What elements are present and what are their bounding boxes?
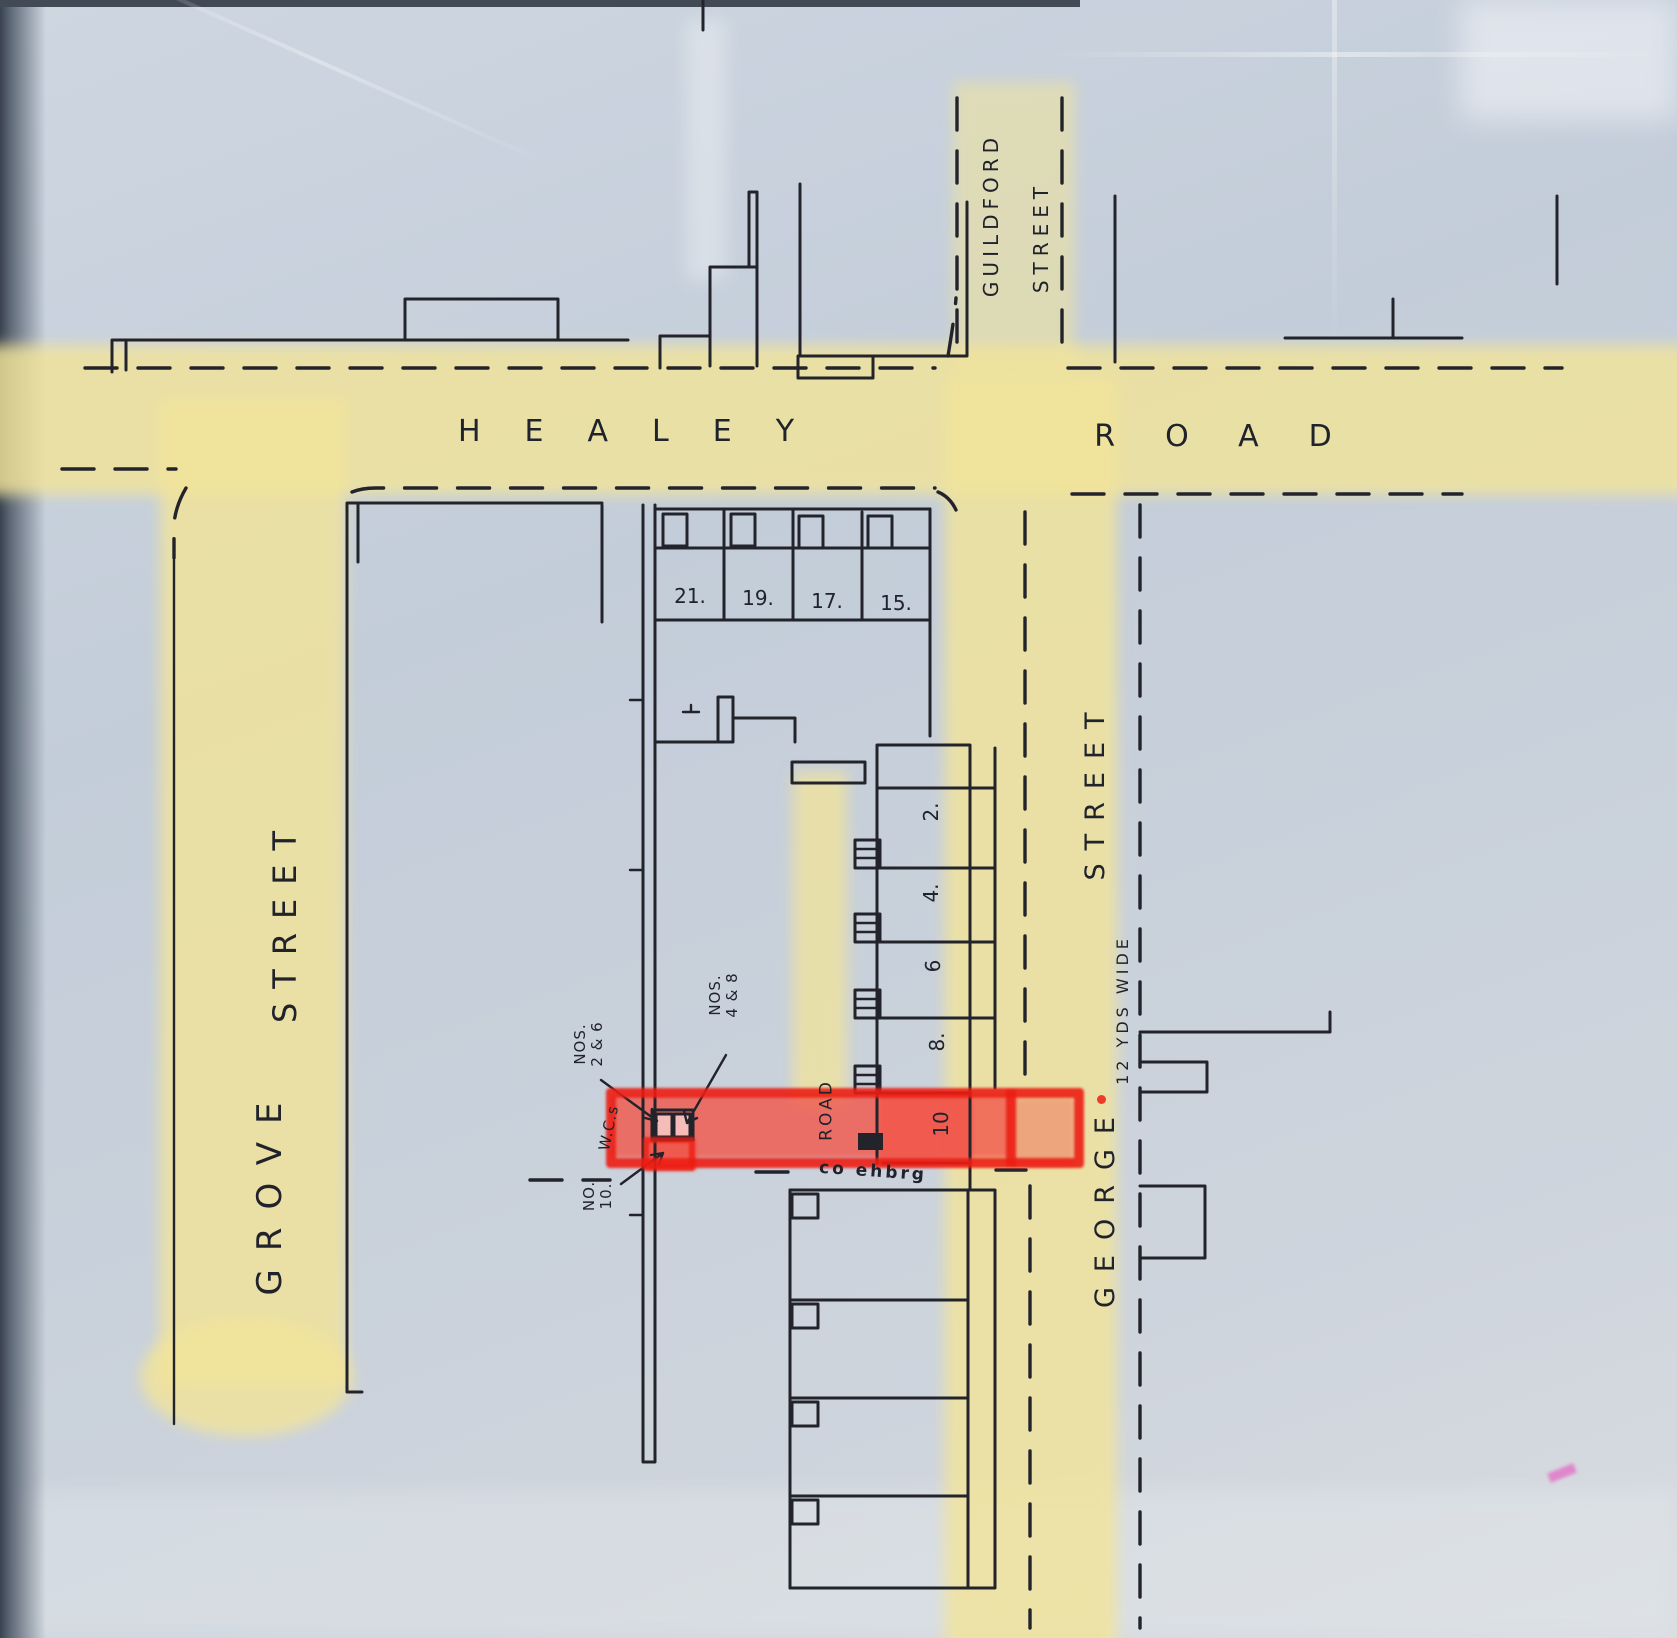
grove-street-label-1: GROVE bbox=[251, 1085, 289, 1296]
grove-street-label-2: STREET bbox=[268, 817, 304, 1023]
house-number-19: 19. bbox=[742, 587, 774, 609]
house-number-15: 15. bbox=[880, 592, 912, 614]
courtyard-structures bbox=[655, 697, 865, 783]
house-number-2: 2. bbox=[920, 802, 942, 821]
annotation-nos-2-6: NOS. 2 & 6 bbox=[572, 1021, 606, 1066]
annotation-line: NOS. bbox=[572, 1021, 589, 1066]
annotation-line: NOS. bbox=[707, 972, 724, 1017]
annotation-nos-4-8: NOS. 4 & 8 bbox=[707, 972, 741, 1017]
guildford-street-label-1: GUILDFORD bbox=[980, 133, 1002, 297]
annotation-line: NO. bbox=[581, 1181, 598, 1211]
house-number-8: 8. bbox=[926, 1032, 948, 1051]
healey-house-row bbox=[655, 509, 930, 736]
annotation-line: 4 & 8 bbox=[724, 972, 741, 1017]
west-block-outline bbox=[347, 503, 655, 1462]
george-street-width-note: 12 YDS WIDE bbox=[1114, 935, 1132, 1085]
annotation-line: 10. bbox=[598, 1181, 615, 1211]
george-street-label-2: STREET bbox=[1081, 699, 1111, 880]
healey-road-label-right: ROAD bbox=[1094, 420, 1382, 454]
house-number-4: 4. bbox=[920, 883, 942, 902]
annotation-line: 2 & 6 bbox=[589, 1021, 606, 1066]
annotation-no-10: NO. 10. bbox=[581, 1181, 615, 1211]
house-number-6: 6 bbox=[922, 960, 944, 973]
house-number-21: 21. bbox=[674, 585, 706, 607]
ink-drawing bbox=[0, 0, 1677, 1638]
house-number-10: 10 bbox=[930, 1111, 952, 1136]
buildings-east-of-george bbox=[1140, 1012, 1330, 1258]
red-square-outline bbox=[643, 1137, 695, 1171]
house-number-17: 17. bbox=[811, 590, 843, 612]
buildings-north-of-healey bbox=[112, 0, 1557, 378]
guildford-street-label-2: STREET bbox=[1030, 181, 1052, 293]
red-clearance-divider bbox=[1006, 1090, 1016, 1166]
back-lane-road-label: ROAD bbox=[817, 1079, 836, 1141]
houses-south-of-lane bbox=[790, 1190, 995, 1588]
george-street-label-1: GEORGE bbox=[1091, 1102, 1121, 1308]
street-clearance-plan: HEALEY ROAD GUILDFORD STREET GROVE STREE… bbox=[0, 0, 1677, 1638]
healey-road-label-left: HEALEY bbox=[458, 415, 838, 449]
